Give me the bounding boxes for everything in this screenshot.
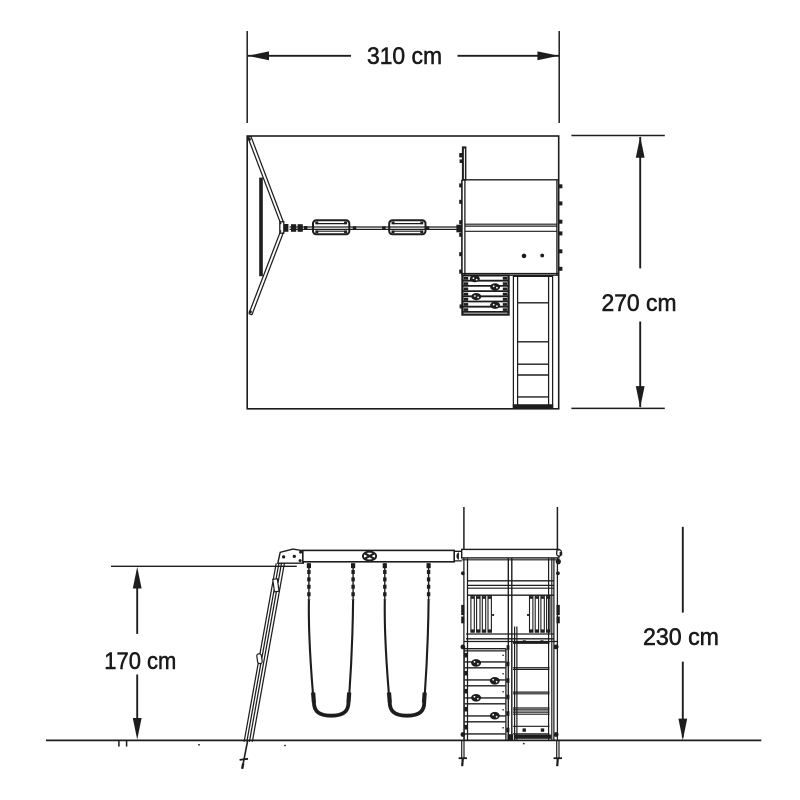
svg-text:270 cm: 270 cm	[602, 290, 677, 317]
svg-text:310 cm: 310 cm	[367, 43, 442, 70]
svg-text:230 cm: 230 cm	[643, 624, 719, 651]
svg-text:170 cm: 170 cm	[104, 648, 176, 675]
